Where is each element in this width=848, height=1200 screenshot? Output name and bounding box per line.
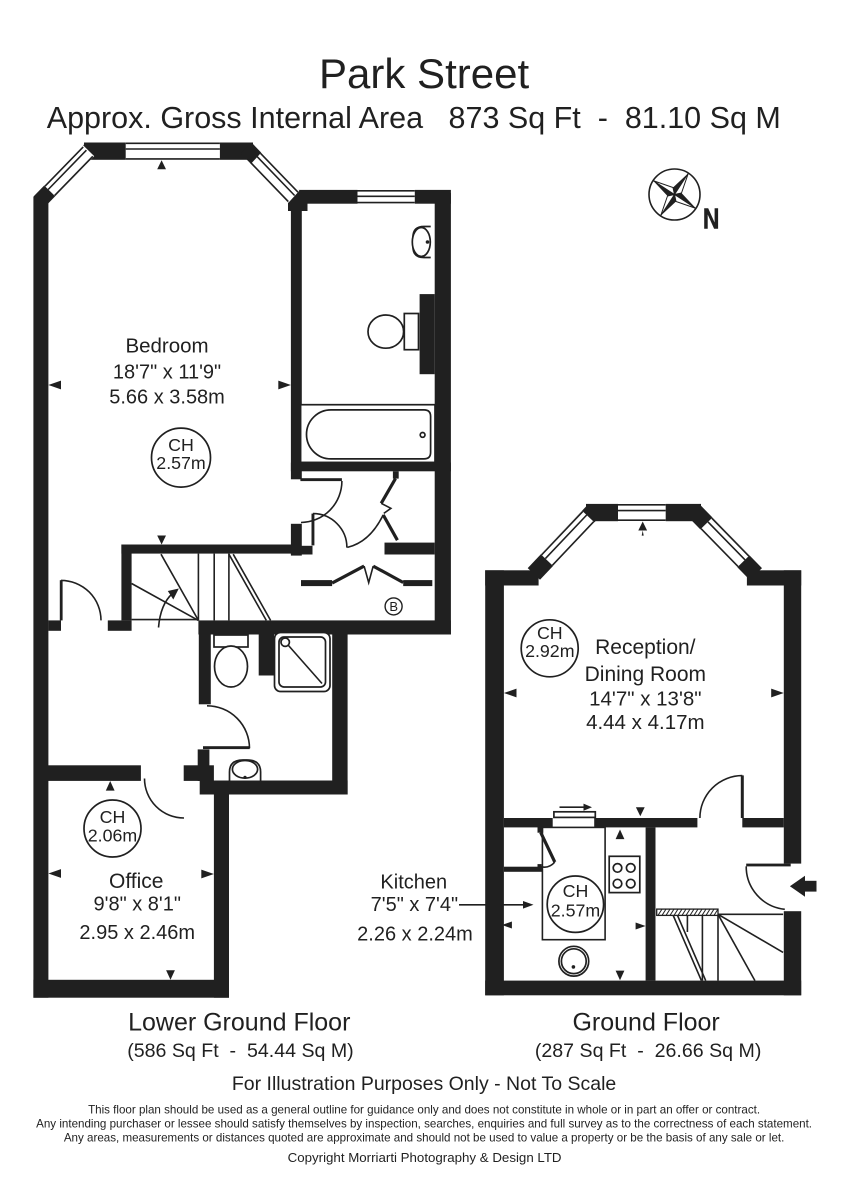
svg-text:Any areas, measurements or dis: Any areas, measurements or distances quo… <box>64 1132 785 1145</box>
svg-text:2.26 x 2.24m: 2.26 x 2.24m <box>357 923 473 945</box>
svg-text:5.66 x 3.58m: 5.66 x 3.58m <box>109 387 225 409</box>
svg-text:2.92m: 2.92m <box>525 641 574 661</box>
svg-text:9'8" x 8'1": 9'8" x 8'1" <box>94 894 181 916</box>
svg-text:2.06m: 2.06m <box>88 826 137 846</box>
svg-text:CH: CH <box>537 623 563 643</box>
svg-text:2.95 x 2.46m: 2.95 x 2.46m <box>79 922 195 944</box>
svg-text:2.57m: 2.57m <box>551 901 600 921</box>
svg-text:7'5" x 7'4": 7'5" x 7'4" <box>371 894 458 916</box>
svg-text:CH: CH <box>100 807 126 827</box>
svg-text:Approx. Gross Internal Area: Approx. Gross Internal Area 873 Sq Ft - … <box>47 101 781 135</box>
svg-text:For Illustration Purposes Only: For Illustration Purposes Only - Not To … <box>232 1073 616 1095</box>
svg-text:14'7" x 13'8": 14'7" x 13'8" <box>589 687 701 710</box>
svg-text:(287 Sq Ft - 26.66 Sq M): (287 Sq Ft - 26.66 Sq M) <box>535 1040 762 1062</box>
svg-text:4.44 x 4.17m: 4.44 x 4.17m <box>586 711 705 734</box>
svg-text:Office: Office <box>109 870 163 893</box>
svg-text:(586 Sq Ft - 54.44 Sq M): (586 Sq Ft - 54.44 Sq M) <box>127 1040 354 1062</box>
svg-text:B: B <box>389 599 398 614</box>
svg-text:18'7" x 11'9": 18'7" x 11'9" <box>113 362 221 384</box>
svg-text:Copyright Morriarti Photograph: Copyright Morriarti Photography & Design… <box>288 1150 562 1165</box>
svg-text:CH: CH <box>168 435 194 455</box>
svg-text:Dining Room: Dining Room <box>585 663 706 686</box>
svg-text:This floor plan should be used: This floor plan should be used as a gene… <box>88 1104 760 1117</box>
svg-text:Any intending purchaser or les: Any intending purchaser or lessee should… <box>36 1118 812 1131</box>
svg-text:Lower Ground Floor: Lower Ground Floor <box>128 1009 350 1037</box>
svg-text:Bedroom: Bedroom <box>125 335 208 358</box>
svg-text:Kitchen: Kitchen <box>380 871 447 893</box>
svg-text:Ground Floor: Ground Floor <box>572 1009 719 1037</box>
svg-text:CH: CH <box>563 881 589 901</box>
svg-text:Reception/: Reception/ <box>595 636 696 659</box>
svg-text:Park Street: Park Street <box>319 50 529 97</box>
svg-text:2.57m: 2.57m <box>156 453 205 473</box>
